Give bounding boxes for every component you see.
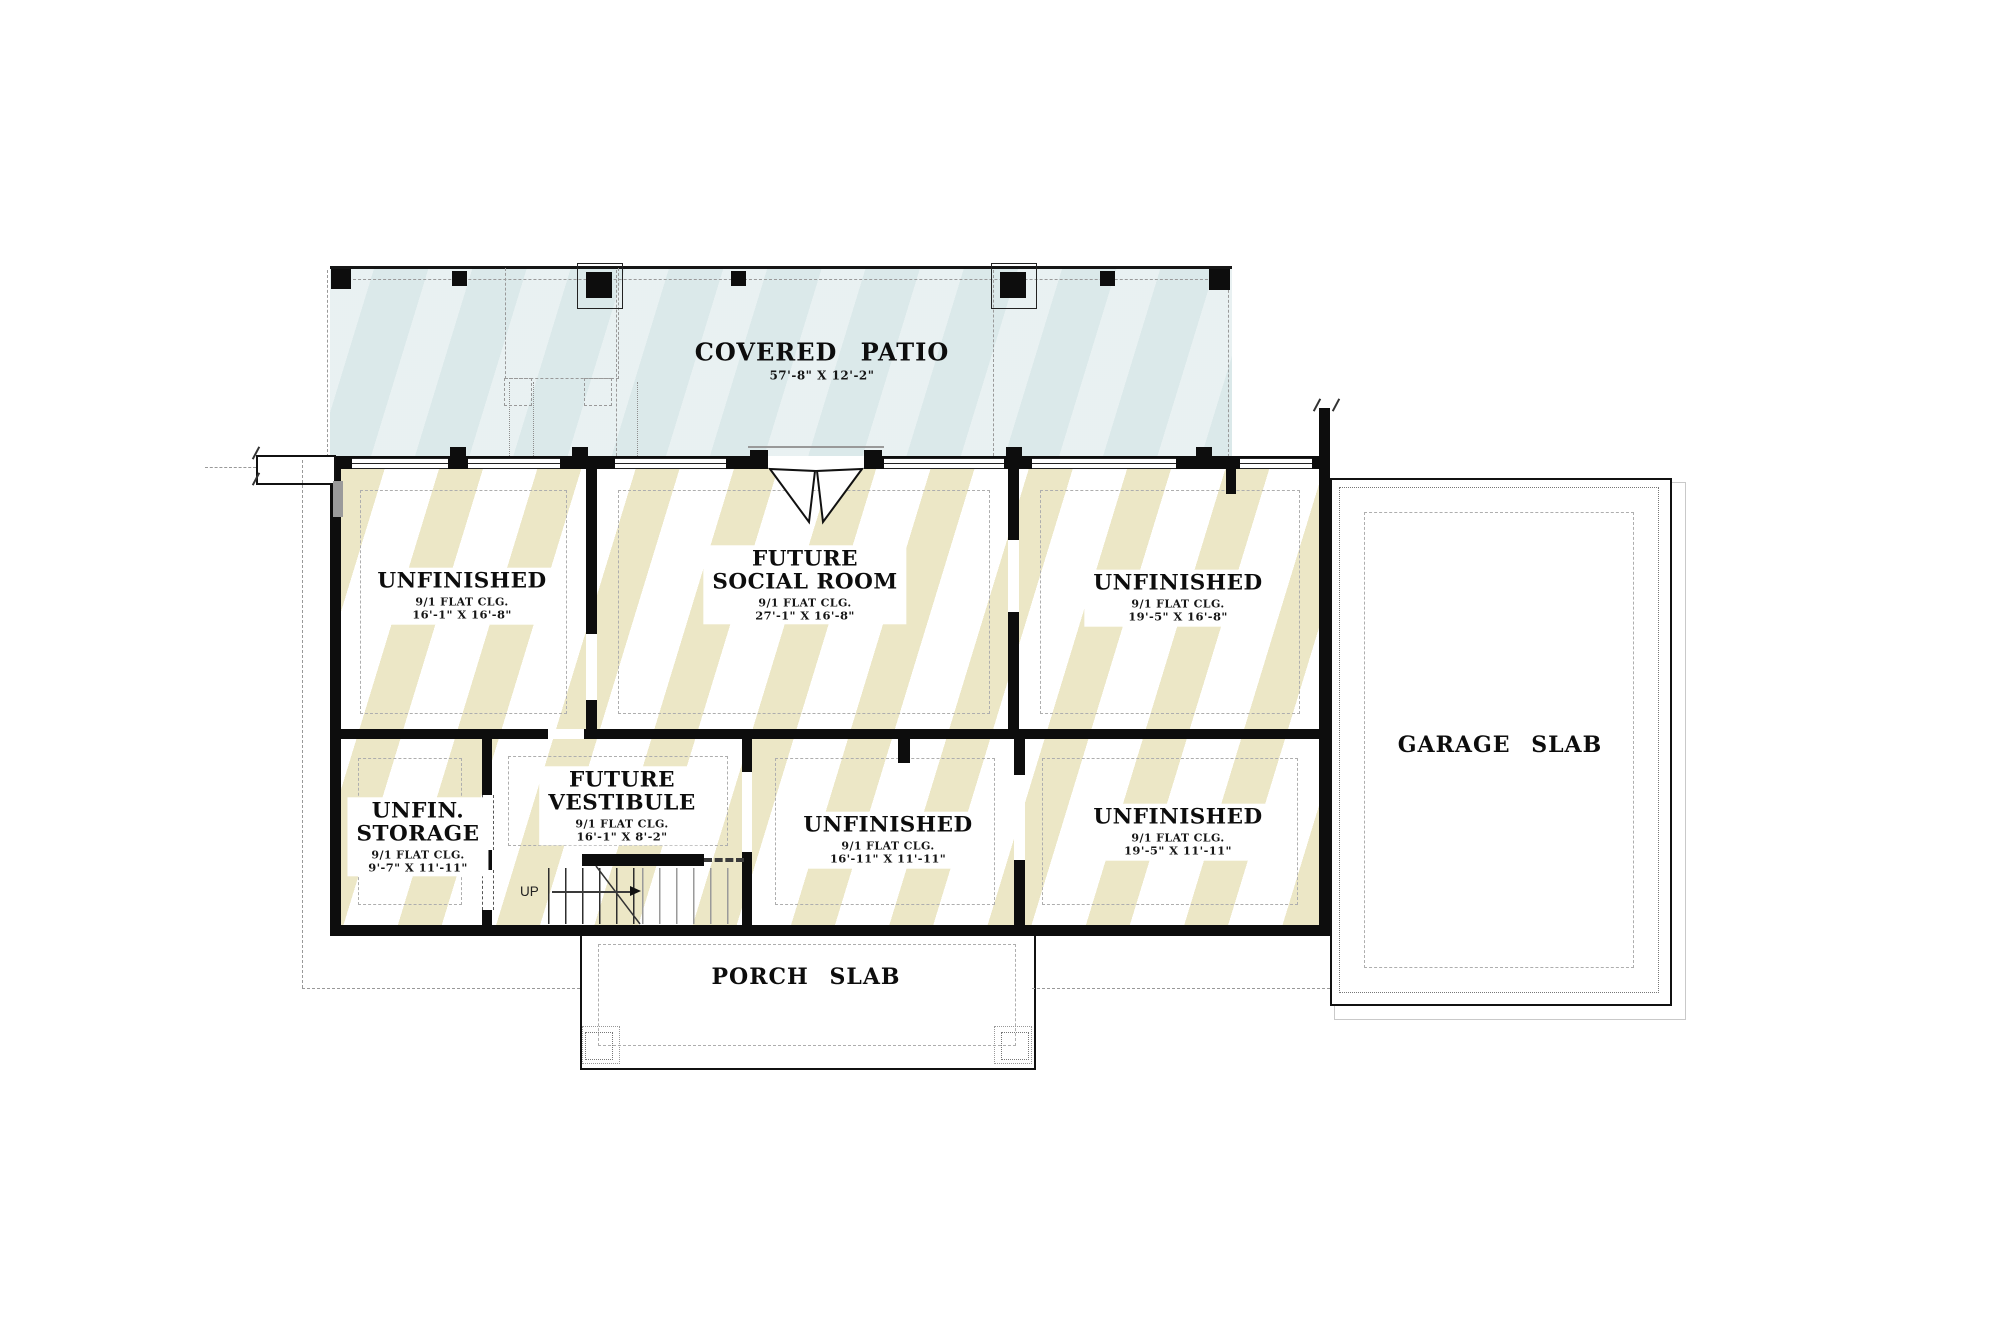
deck-stringer-dotted	[509, 382, 510, 456]
covered-patio-label: COVERED PATIO 57'-8" X 12'-2"	[695, 338, 950, 383]
room-ceiling: 9/1 FLAT CLG.	[377, 596, 546, 608]
door-opening	[742, 772, 752, 852]
patio-column	[1000, 272, 1026, 298]
room-label-unfinished-ne: UNFINISHED 9/1 FLAT CLG. 19'-5" X 16'-8"	[1084, 570, 1271, 627]
patio-column	[731, 271, 746, 286]
interior-wall-mid	[330, 729, 1330, 739]
room-name: FUTURE	[548, 769, 696, 792]
door-opening	[548, 729, 584, 739]
floor-plan-canvas: UP COVERED PATIO 57'-8" X 12'-2" UNFINIS…	[0, 0, 2000, 1333]
window	[352, 458, 448, 469]
foundation-pad	[333, 481, 343, 517]
wall-post	[1006, 447, 1022, 457]
wall-post	[450, 447, 466, 457]
room-dims: 19'-5" X 16'-8"	[1093, 611, 1262, 623]
room-dims: 16'-1" X 16'-8"	[377, 609, 546, 621]
stair-treads-above-cut	[642, 868, 740, 924]
porch-pier	[1001, 1032, 1029, 1060]
foundation-dashed-extension	[205, 467, 256, 468]
deck-post-above-outline	[584, 378, 612, 406]
room-label-future-vestibule: FUTURE VESTIBULE 9/1 FLAT CLG. 16'-1" X …	[539, 766, 705, 845]
room-name: SOCIAL ROOM	[712, 571, 897, 594]
window	[468, 458, 560, 469]
room-ceiling: 9/1 FLAT CLG.	[548, 818, 696, 830]
stair-direction-line	[552, 891, 630, 893]
room-name: UNFINISHED	[1093, 573, 1262, 596]
room-name: VESTIBULE	[548, 792, 696, 815]
room-name: UNFINISHED	[377, 571, 546, 594]
footprint-offset-dashed	[302, 988, 580, 989]
window	[615, 458, 726, 469]
room-dims: 27'-1" X 16'-8"	[712, 610, 897, 622]
room-name: FUTURE	[712, 548, 897, 571]
patio-column	[586, 272, 612, 298]
stair-wall-dashed	[704, 858, 744, 862]
patio-edge-right-dashed	[1228, 270, 1229, 457]
deck-stringer-dotted	[533, 382, 534, 456]
stair-direction-arrow-icon	[630, 886, 641, 896]
wall-stub	[1226, 466, 1236, 494]
room-name: UNFINISHED	[803, 815, 972, 838]
room-ceiling: 9/1 FLAT CLG.	[803, 840, 972, 852]
stair-up-label: UP	[520, 884, 539, 899]
porch-pier	[585, 1032, 613, 1060]
patio-edge-left-dashed	[327, 270, 328, 457]
room-dims: 16'-11" X 11'-11"	[803, 853, 972, 865]
porch-slab-label: PORCH SLAB	[712, 964, 901, 990]
patio-column	[452, 271, 467, 286]
footprint-offset-dashed	[1032, 988, 1330, 989]
room-ceiling: 9/1 FLAT CLG.	[1093, 598, 1262, 610]
exterior-wall-right	[1319, 408, 1330, 936]
patio-column	[1209, 269, 1230, 290]
room-label-unfinished-se: UNFINISHED 9/1 FLAT CLG. 19'-5" X 11'-11…	[1084, 804, 1271, 861]
room-label-unfinished-s: UNFINISHED 9/1 FLAT CLG. 16'-11" X 11'-1…	[794, 812, 981, 869]
window	[884, 458, 1004, 469]
door-jamb-post	[750, 450, 768, 468]
patio-column	[1100, 271, 1115, 286]
door-opening	[1008, 540, 1019, 612]
exterior-wall-bottom	[330, 925, 1330, 936]
room-name: UNFIN.	[356, 800, 479, 823]
room-label-unfinished-nw: UNFINISHED 9/1 FLAT CLG. 16'-1" X 16'-8"	[368, 568, 555, 625]
garage-slab-label: GARAGE SLAB	[1398, 732, 1602, 758]
patio-column	[331, 269, 351, 289]
room-ceiling: 9/1 FLAT CLG.	[712, 597, 897, 609]
break-mark-icon	[1332, 398, 1340, 411]
door-jamb-post	[864, 450, 882, 468]
room-dims: 19'-5" X 11'-11"	[1093, 845, 1262, 857]
patio-dims: 57'-8" X 12'-2"	[695, 369, 950, 383]
room-label-unfin-storage: UNFIN. STORAGE 9/1 FLAT CLG. 9'-7" X 11'…	[347, 797, 488, 876]
stair-break-line-icon	[588, 864, 652, 928]
room-dims: 9'-7" X 11'-11"	[356, 862, 479, 874]
wall-post	[1196, 447, 1212, 457]
door-opening	[1014, 775, 1025, 860]
wall-post	[572, 447, 588, 457]
patio-roofline-dashed	[338, 279, 1228, 280]
foundation-projection	[256, 455, 336, 485]
window	[1032, 458, 1176, 469]
room-ceiling: 9/1 FLAT CLG.	[356, 849, 479, 861]
room-ceiling: 9/1 FLAT CLG.	[1093, 832, 1262, 844]
wall-stub	[898, 739, 910, 763]
room-dims: 16'-1" X 8'-2"	[548, 831, 696, 843]
window	[1240, 458, 1312, 469]
french-door-leaves-icon	[768, 468, 864, 526]
deck-stringer-dotted	[637, 382, 638, 456]
patio-name: COVERED PATIO	[695, 338, 950, 367]
door-sill-line	[748, 446, 884, 448]
door-opening	[586, 634, 597, 700]
room-label-future-social-room: FUTURE SOCIAL ROOM 9/1 FLAT CLG. 27'-1" …	[703, 545, 906, 624]
exterior-wall-left	[330, 456, 341, 936]
room-name: STORAGE	[356, 823, 479, 846]
porch-footing-dashed	[598, 944, 1016, 1046]
footprint-offset-dashed	[302, 460, 303, 988]
room-name: UNFINISHED	[1093, 807, 1262, 830]
